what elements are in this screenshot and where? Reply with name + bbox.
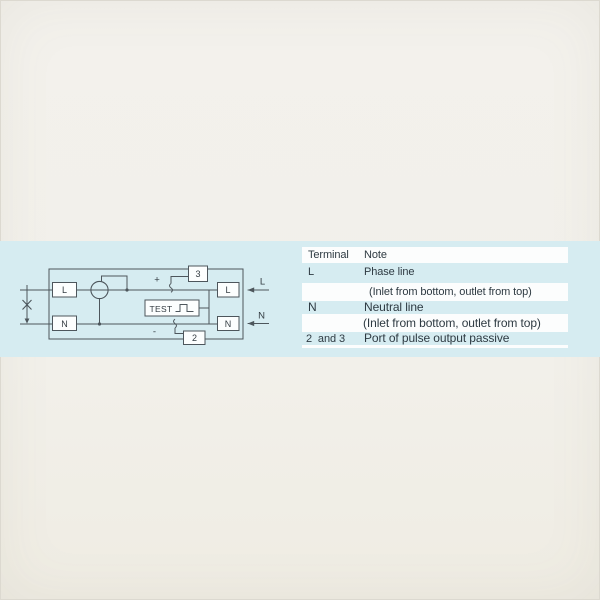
table-header-note: Note [364, 249, 387, 261]
label-left-n: N [61, 319, 68, 329]
left-arrowhead-icon [248, 321, 255, 326]
table-cell-note-neutral: Neutral line [364, 300, 424, 314]
label-arrow-n: N [258, 310, 265, 321]
label-plus: + [154, 275, 160, 286]
table-cell-note-phase: Phase line [364, 266, 414, 278]
label-test: TEST [150, 304, 173, 314]
table-bottom-rule [302, 345, 568, 348]
table-cell-terminal-2and3: 2 and 3 [306, 333, 345, 345]
junction-dot [98, 322, 101, 325]
table-cell-note-inlet-2: (Inlet from bottom, outlet from top) [363, 316, 541, 330]
left-arrowhead-icon [248, 287, 255, 292]
label-right-l: L [225, 285, 230, 295]
table-header-terminal: Terminal [308, 249, 349, 261]
label-box3: 3 [195, 269, 200, 279]
table-cell-note-inlet-1: (Inlet from bottom, outlet from top) [369, 286, 532, 298]
table-cell-note-pulse: Port of pulse output passive [364, 331, 509, 345]
pulse2-feed-wire [175, 328, 184, 334]
scanned-datasheet-page: L N L N 3 2 TEST + - L N Terminal Note L… [0, 0, 600, 600]
pulse3-feed-wire [171, 277, 188, 284]
squiggle-top [170, 284, 173, 293]
label-arrow-l: L [260, 277, 265, 288]
label-right-n: N [225, 319, 232, 329]
label-left-l: L [62, 285, 67, 295]
table-cell-terminal-l: L [308, 266, 314, 278]
label-box2: 2 [192, 333, 197, 343]
label-minus: - [153, 327, 156, 338]
junction-dot [125, 288, 128, 291]
table-cell-terminal-n: N [308, 300, 317, 314]
down-arrowhead-icon [25, 319, 30, 324]
